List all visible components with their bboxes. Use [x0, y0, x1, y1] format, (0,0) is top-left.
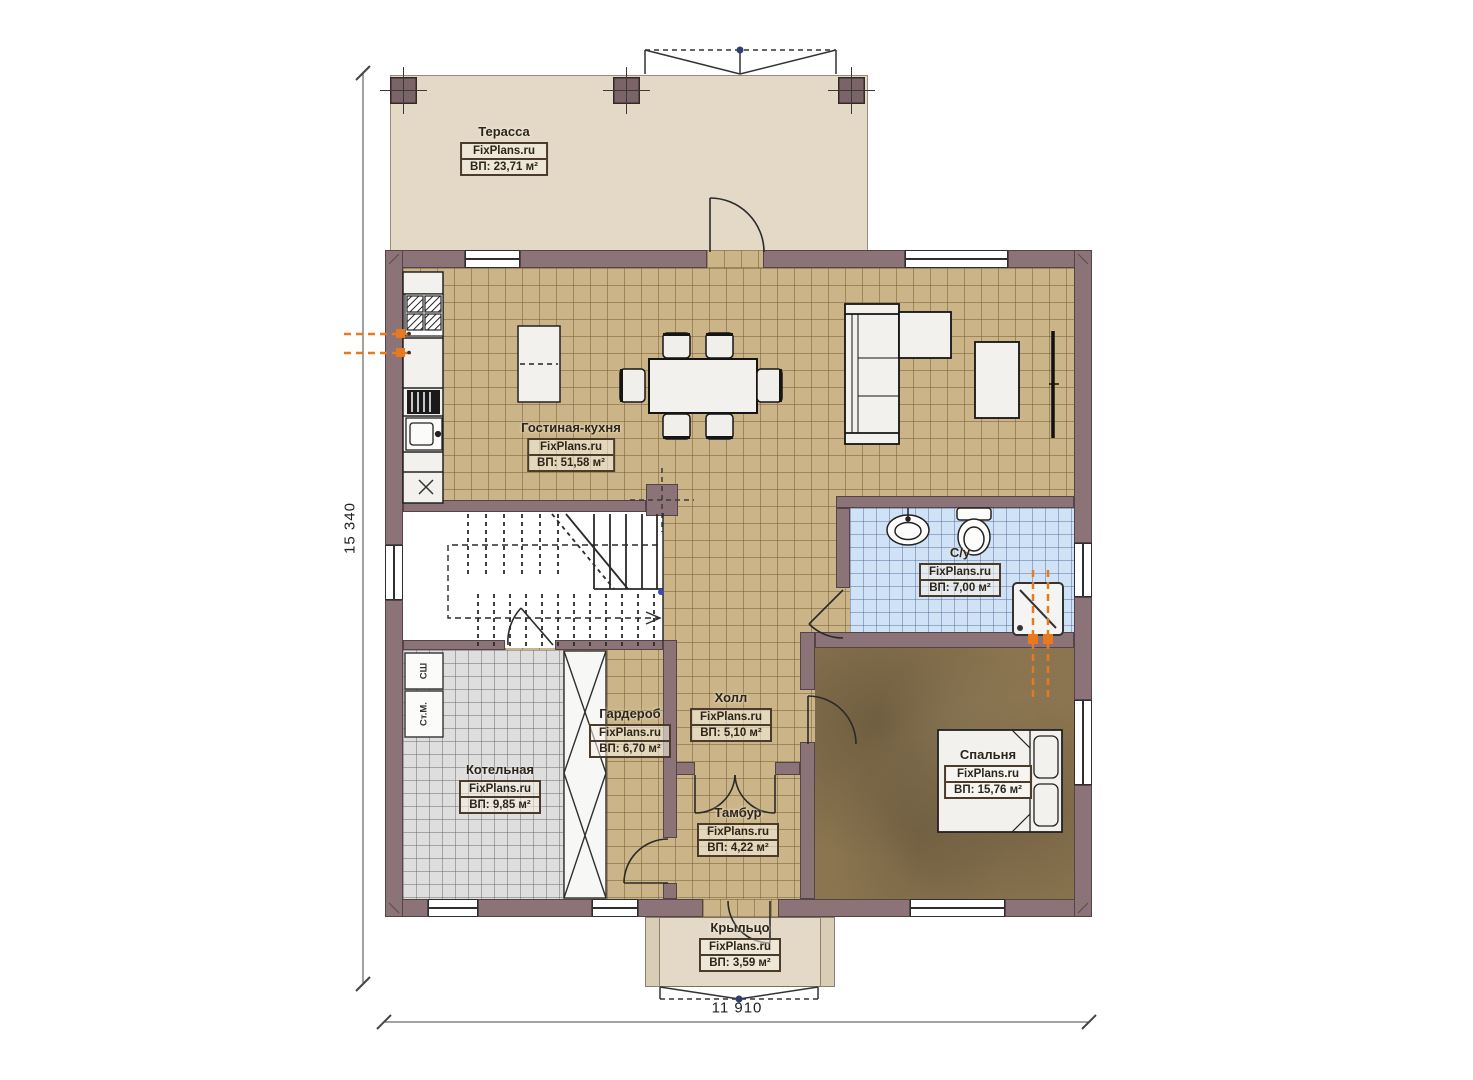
wall [638, 899, 703, 917]
brand: FixPlans.ru [591, 726, 669, 740]
wall [478, 899, 592, 917]
wall-interior [815, 632, 1074, 648]
pillar [646, 484, 678, 516]
wall-interior [800, 632, 815, 690]
wall [385, 250, 403, 545]
brand: FixPlans.ru [461, 782, 539, 796]
porch-step-right [820, 917, 835, 987]
room-label-terrace: Терасса FixPlans.ru ВП: 23,71 м² [460, 124, 548, 176]
room-label-bathroom: С/у FixPlans.ru ВП: 7,00 м² [919, 545, 1001, 597]
wall-interior [403, 500, 646, 512]
room-area: ВП: 5,10 м² [692, 724, 770, 740]
washer-label: Ст.М. [419, 702, 430, 726]
porch-step-left [645, 917, 660, 987]
room-label-porch: Крыльцо FixPlans.ru ВП: 3,59 м² [699, 920, 781, 972]
dimension-line-horizontal [377, 1015, 1096, 1029]
brand: FixPlans.ru [946, 767, 1030, 781]
wall-interior [775, 762, 800, 775]
window [428, 899, 478, 917]
room-title: С/у [919, 545, 1001, 560]
terrace-column [613, 77, 640, 104]
wall-interior [836, 496, 1074, 508]
room-title: Тамбур [697, 805, 779, 820]
entry-mark-terrace [645, 47, 836, 75]
brand: FixPlans.ru [699, 825, 777, 839]
wall [1074, 250, 1092, 543]
room-label-vestibule: Тамбур FixPlans.ru ВП: 4,22 м² [697, 805, 779, 857]
wall [1074, 597, 1092, 700]
room-label-hall: Холл FixPlans.ru ВП: 5,10 м² [690, 690, 772, 742]
wall [763, 250, 905, 268]
wall-interior [403, 640, 505, 650]
room-label-boiler: Котельная FixPlans.ru ВП: 9,85 м² [459, 762, 541, 814]
room-area: ВП: 6,70 м² [591, 740, 669, 756]
brand: FixPlans.ru [462, 144, 546, 158]
window [592, 899, 638, 917]
terrace-column [390, 77, 417, 104]
room-title: Гардероб [589, 706, 671, 721]
brand: FixPlans.ru [529, 440, 613, 454]
room-area: ВП: 51,58 м² [529, 454, 613, 470]
room-title: Крыльцо [699, 920, 781, 935]
room-area: ВП: 4,22 м² [699, 839, 777, 855]
wall-interior [555, 640, 663, 650]
wall [778, 899, 910, 917]
window [1074, 700, 1092, 785]
stair-room-floor [403, 512, 663, 648]
wall-interior [676, 762, 695, 775]
wall [1074, 785, 1092, 917]
dryer-label: СШ [419, 663, 430, 679]
room-title: Котельная [459, 762, 541, 777]
terrace-column [838, 77, 865, 104]
terrace-door-threshold [707, 250, 763, 268]
room-area: ВП: 9,85 м² [461, 796, 539, 812]
brand: FixPlans.ru [692, 710, 770, 724]
wall [385, 600, 403, 917]
window [385, 545, 403, 600]
room-label-wardrobe: Гардероб FixPlans.ru ВП: 6,70 м² [589, 706, 671, 758]
window [905, 250, 1008, 268]
wall-interior [836, 508, 850, 588]
wall-interior [800, 742, 815, 899]
wall-interior [663, 883, 677, 899]
brand: FixPlans.ru [701, 940, 779, 954]
room-area: ВП: 7,00 м² [921, 579, 999, 595]
window [1074, 543, 1092, 597]
room-area: ВП: 3,59 м² [701, 954, 779, 970]
room-title: Холл [690, 690, 772, 705]
room-label-bedroom: Спальня FixPlans.ru ВП: 15,76 м² [944, 747, 1032, 799]
room-title: Спальня [944, 747, 1032, 762]
entrance-door-threshold [703, 899, 778, 917]
room-area: ВП: 23,71 м² [462, 158, 546, 174]
room-label-living-kitchen: Гостиная-кухня FixPlans.ru ВП: 51,58 м² [521, 420, 621, 472]
dimension-height-label: 15 340 [342, 502, 359, 554]
room-area: ВП: 15,76 м² [946, 781, 1030, 797]
dimension-width-label: 11 910 [712, 1000, 763, 1017]
window [465, 250, 520, 268]
brand: FixPlans.ru [921, 565, 999, 579]
floor-plan: СШ Ст.М. Терасса FixPlans.ru ВП: 23,71 м… [0, 0, 1473, 1080]
window [910, 899, 1005, 917]
wall [520, 250, 707, 268]
room-title: Гостиная-кухня [521, 420, 621, 435]
room-title: Терасса [460, 124, 548, 139]
